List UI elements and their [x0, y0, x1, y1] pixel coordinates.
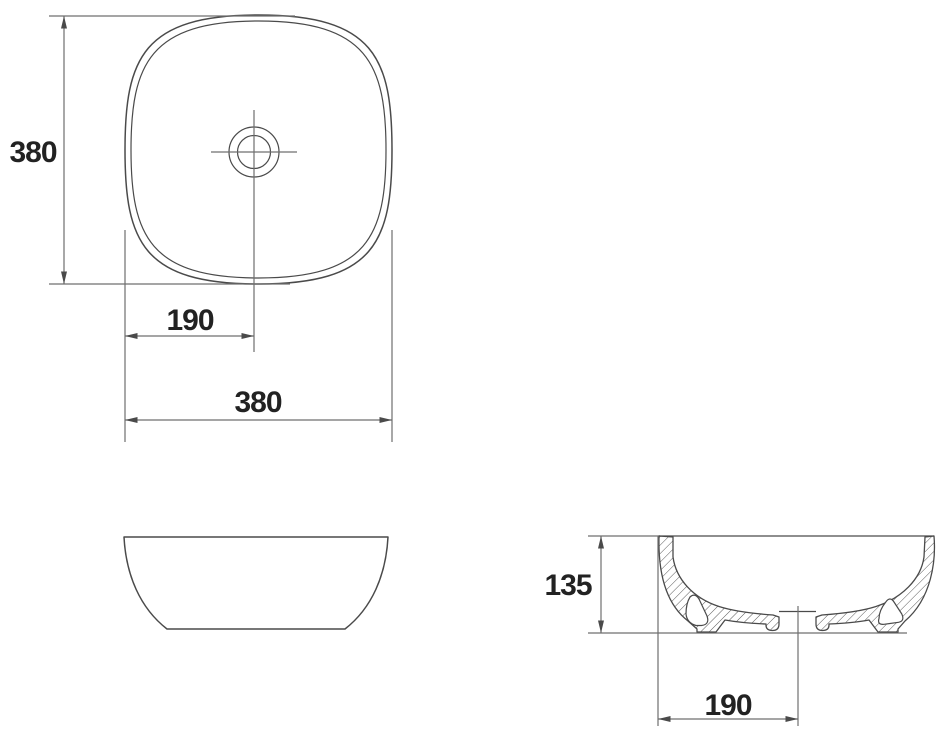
wall-section-right [816, 536, 934, 632]
drawing-canvas: 380 190 380 [0, 0, 944, 732]
dimension-value: 380 [9, 136, 56, 169]
washbasin-technical-drawing: 380 190 380 [0, 0, 944, 732]
section-view: 135 190 [544, 536, 934, 726]
front-view [124, 537, 388, 629]
basin-outer-contour [125, 15, 392, 284]
dimension-value: 380 [234, 386, 281, 419]
arrow-left [125, 417, 138, 423]
arrow-right [242, 333, 255, 339]
arrow-left [658, 716, 671, 722]
arrow-up [61, 16, 67, 29]
arrow-down [61, 272, 67, 285]
arrow-up [598, 536, 604, 549]
dimension-value: 190 [704, 689, 751, 722]
wall-section-left [659, 536, 779, 632]
arrow-down [598, 621, 604, 634]
dimension-section-height: 135 [544, 536, 604, 633]
dimension-section-center-offset: 190 [658, 536, 798, 726]
top-view: 380 190 380 [9, 15, 392, 442]
bowl-silhouette [124, 537, 388, 629]
arrow-right [380, 417, 393, 423]
arrow-right [786, 716, 799, 722]
basin-inner-contour [131, 21, 386, 278]
arrow-left [125, 333, 138, 339]
dimension-value: 135 [544, 569, 591, 602]
dimension-value: 190 [166, 304, 213, 337]
